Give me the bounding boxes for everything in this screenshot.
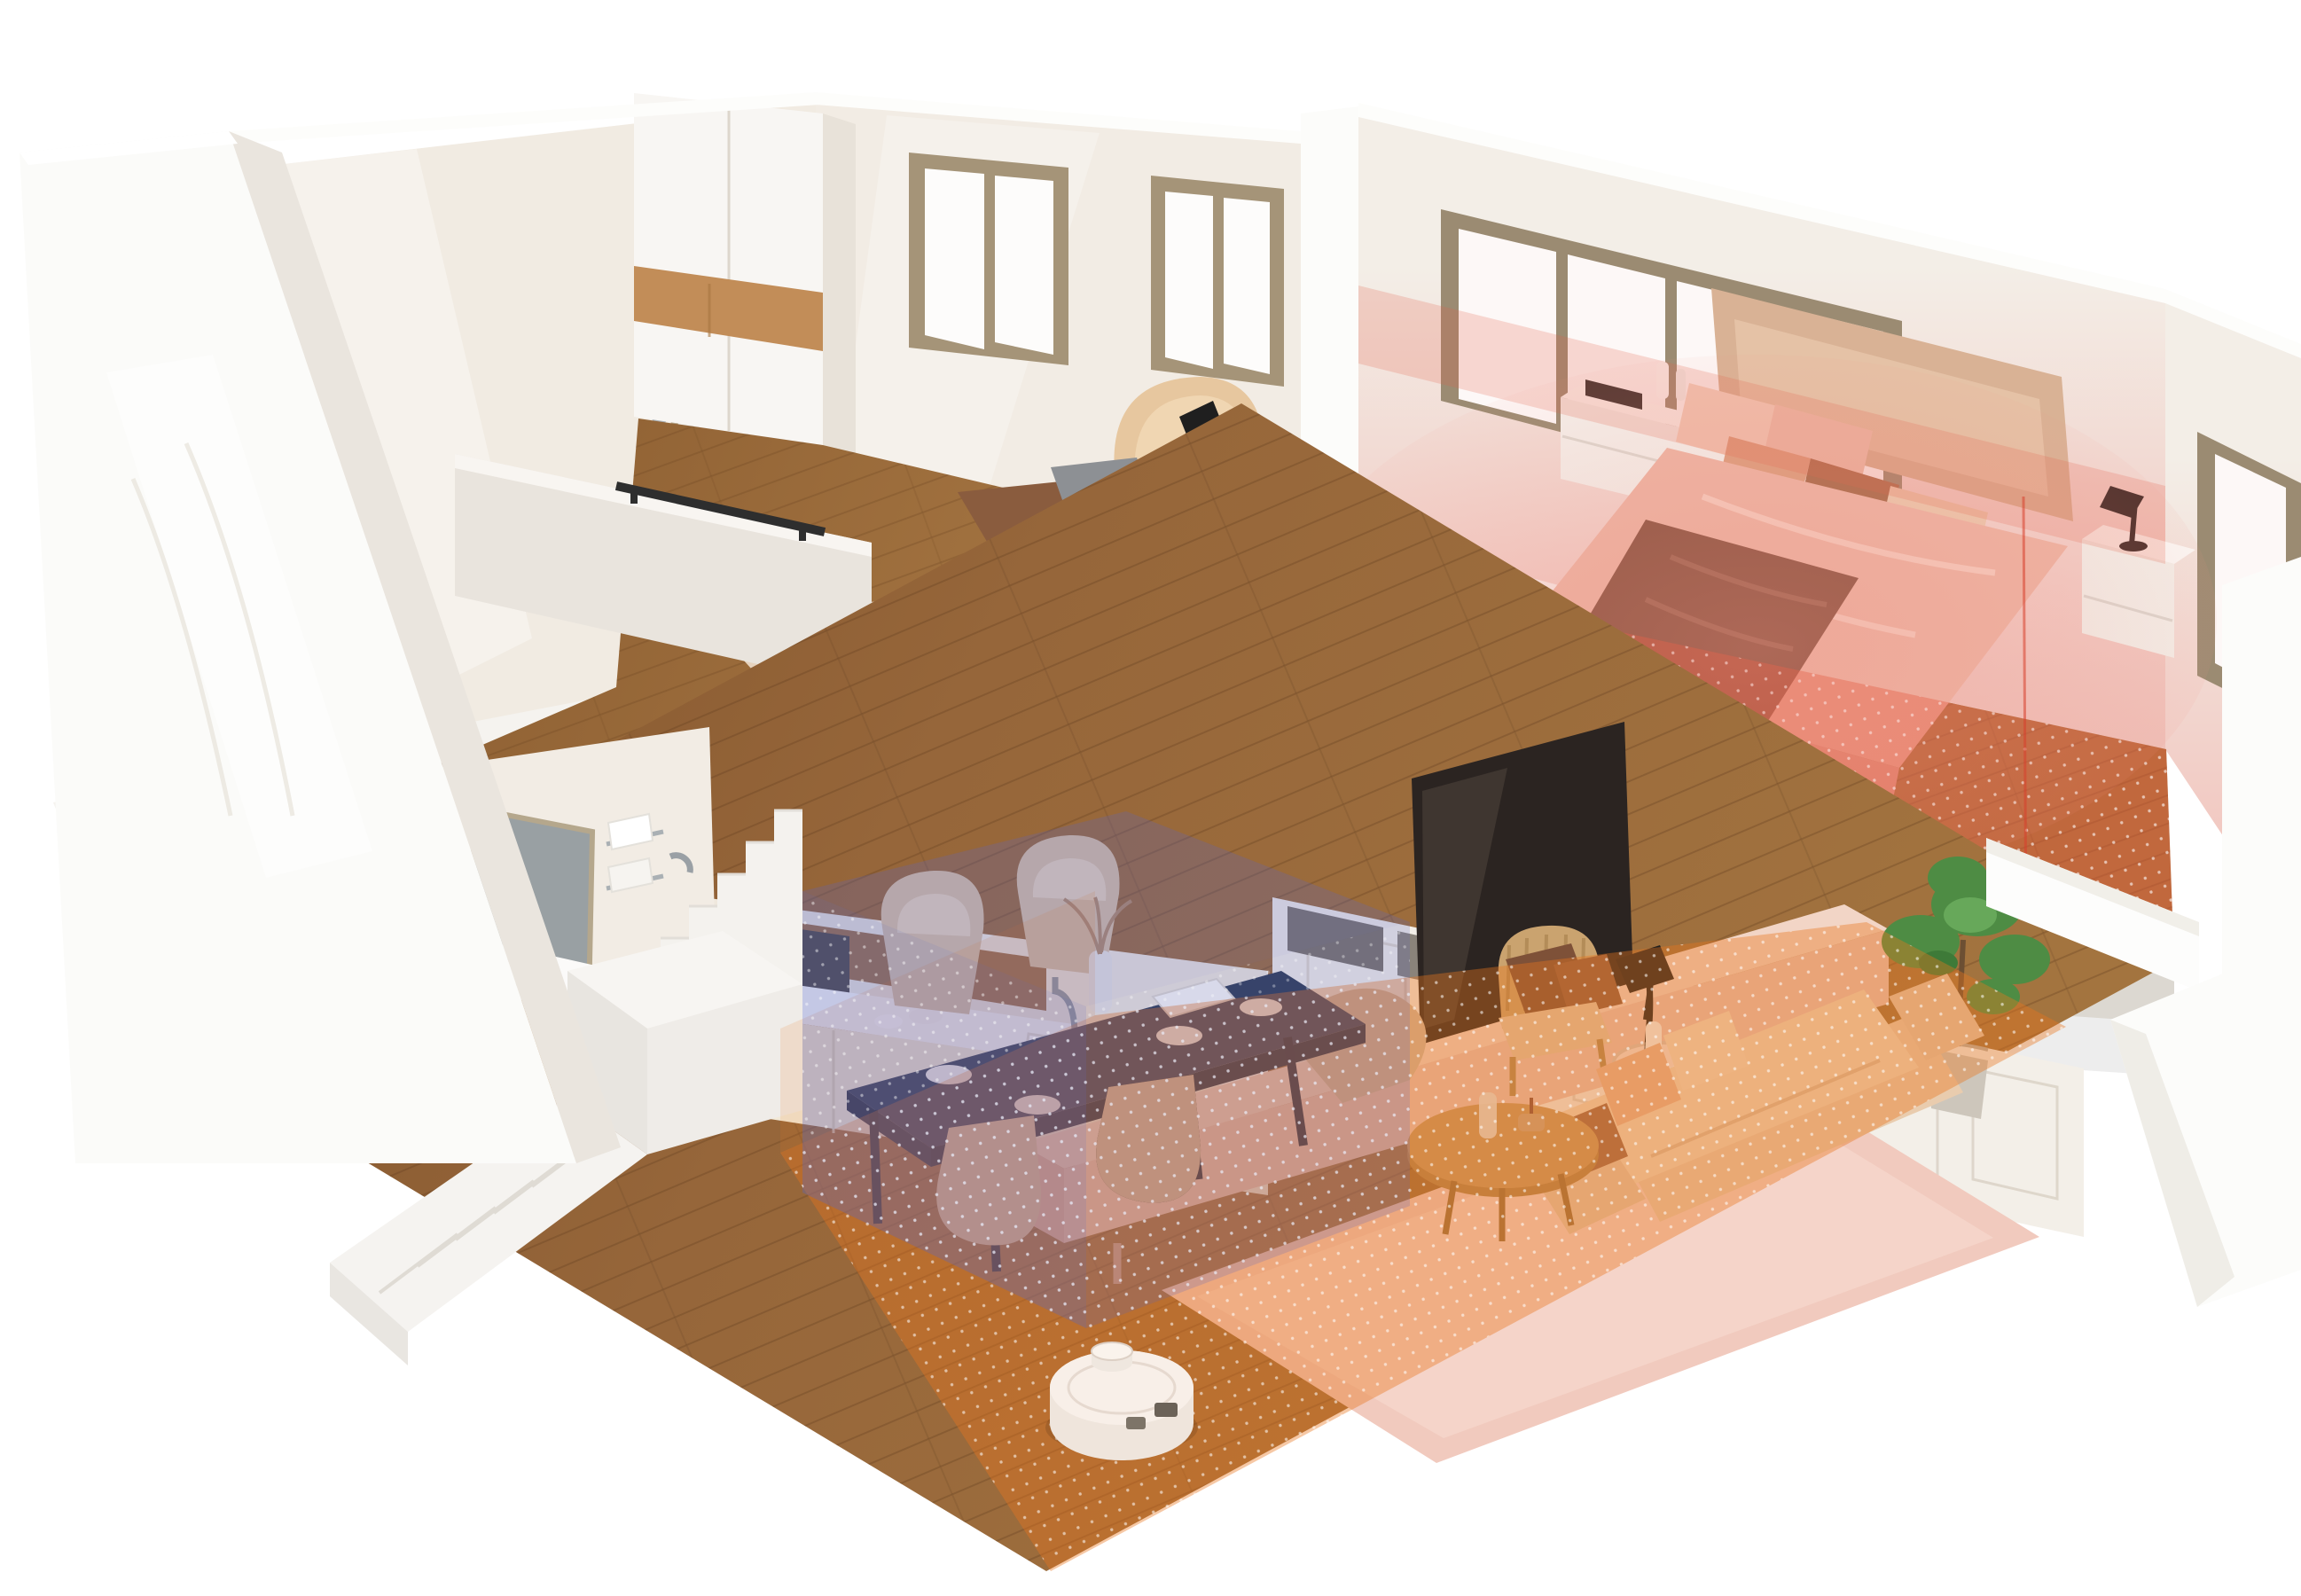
office-window-2 [1151, 176, 1284, 387]
robot-vent [1126, 1417, 1146, 1429]
lidar-turret [1092, 1342, 1132, 1360]
wardrobe [634, 93, 856, 454]
office-window-1 [909, 153, 1068, 365]
robot-vent [1154, 1403, 1178, 1417]
house-cutaway-illustration: Two-story home cutaway showing robot vac… [0, 0, 2301, 1596]
cutaway-scene: Two-story home cutaway showing robot vac… [0, 0, 2301, 1596]
